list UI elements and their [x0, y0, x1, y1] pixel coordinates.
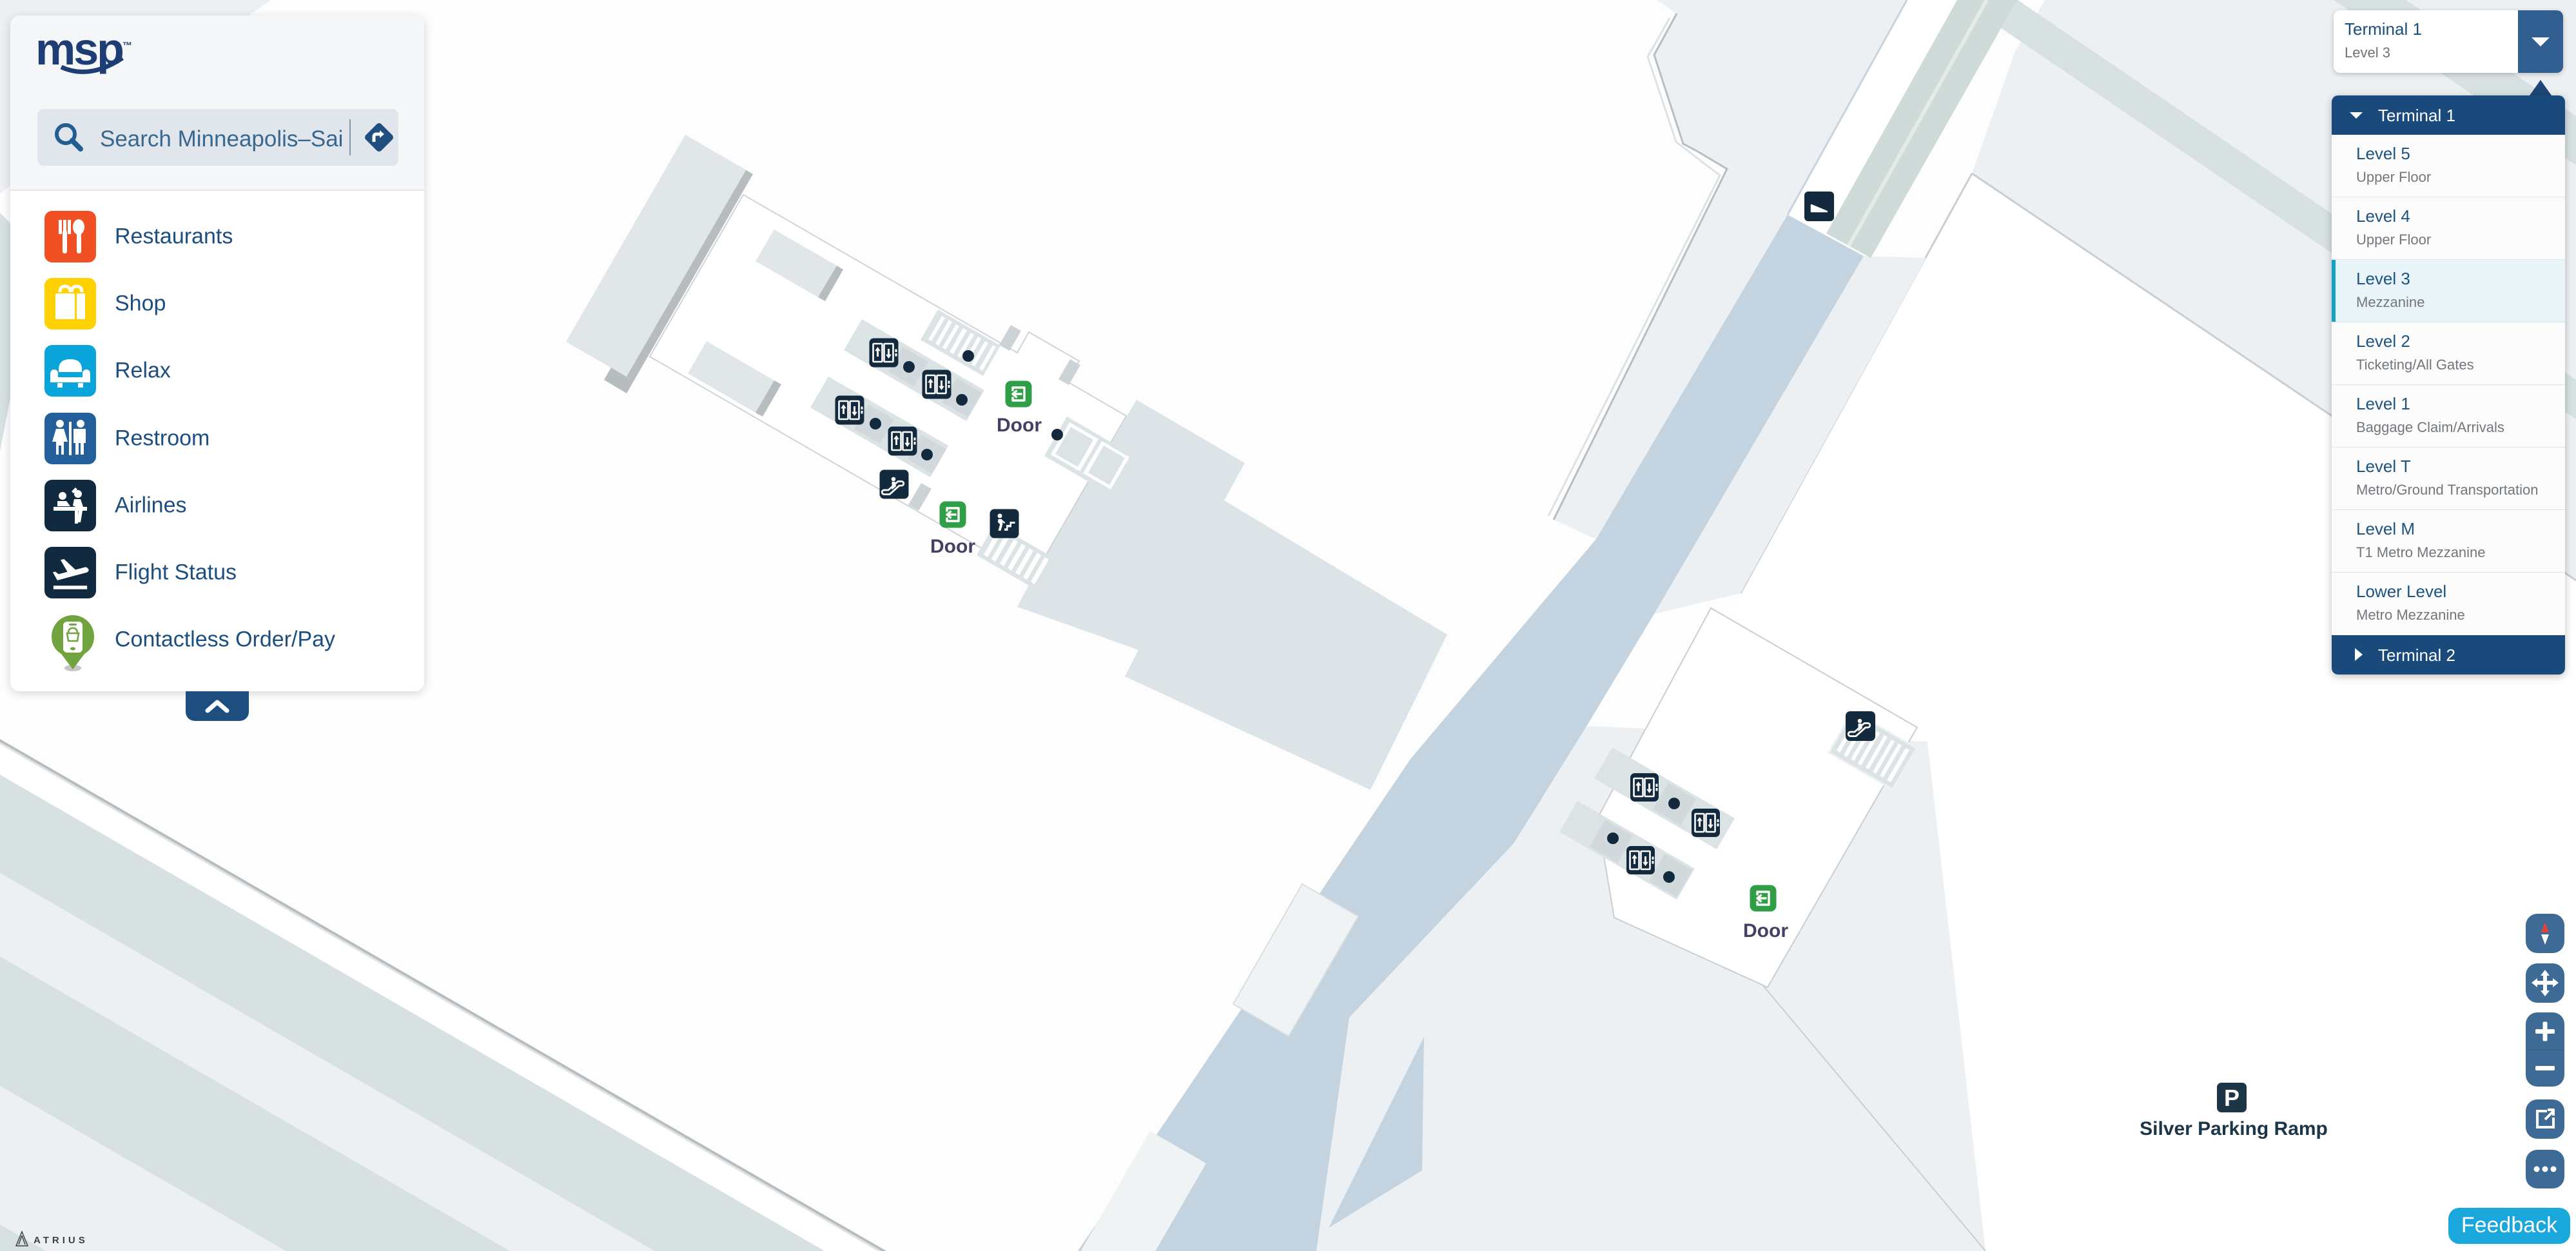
svg-text:Silver Parking Ramp: Silver Parking Ramp [2140, 1118, 2328, 1139]
svg-text:Door: Door [1743, 920, 1788, 941]
svg-text:Door: Door [997, 415, 1042, 436]
svg-text:Door: Door [930, 536, 975, 557]
svg-text:ATRIUS: ATRIUS [34, 1235, 88, 1246]
svg-text:P: P [2224, 1085, 2239, 1111]
